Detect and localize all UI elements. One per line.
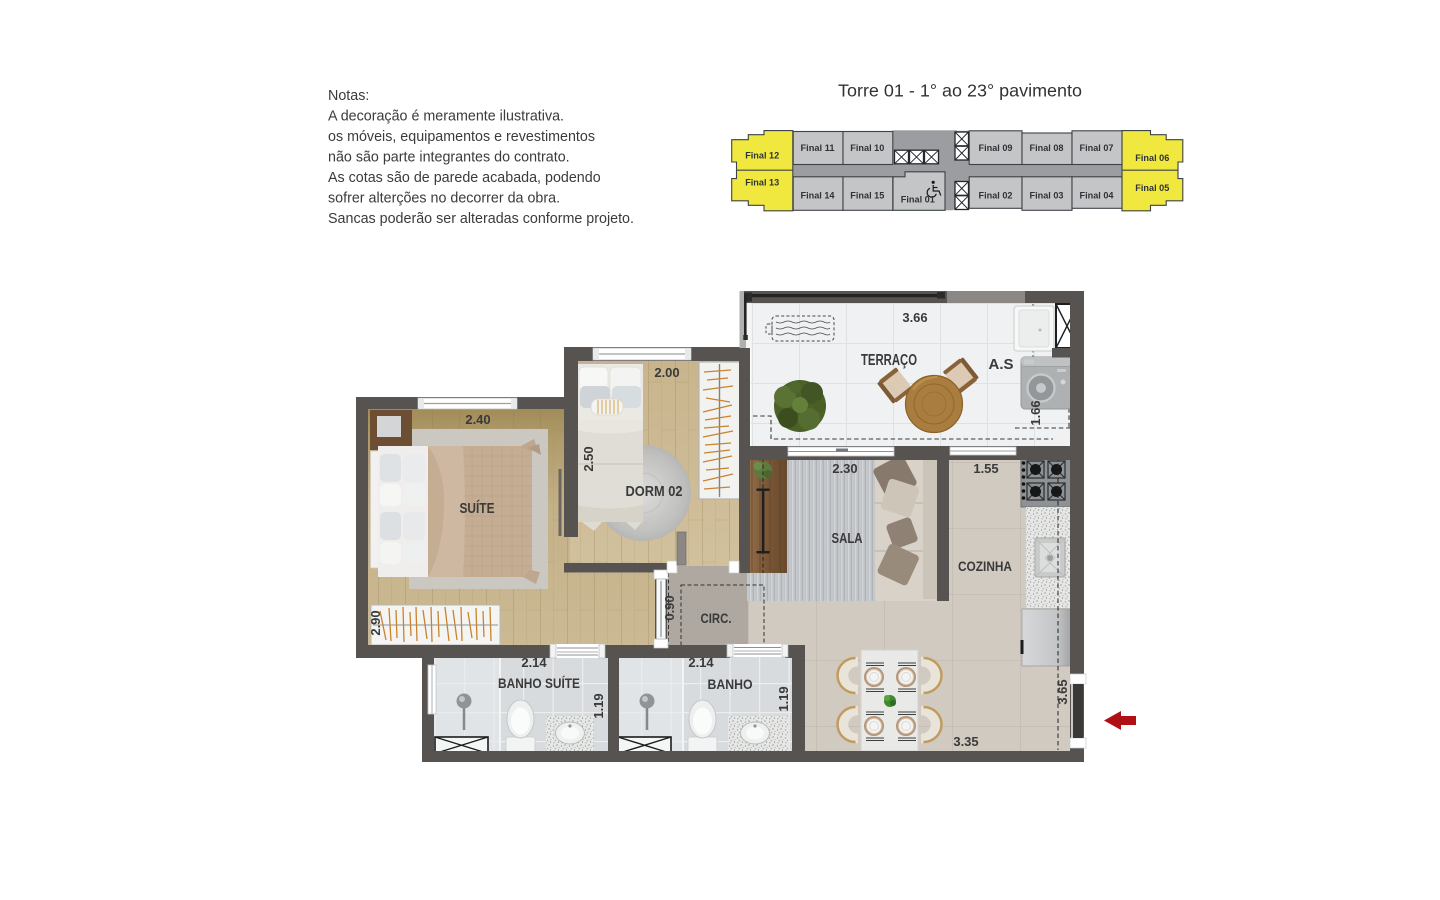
svg-text:Final 10: Final 10 bbox=[850, 143, 884, 153]
svg-text:não são parte integrantes do c: não são parte integrantes do contrato. bbox=[328, 150, 570, 166]
svg-text:1.19: 1.19 bbox=[776, 686, 791, 711]
svg-text:os móveis, equipamentos e reve: os móveis, equipamentos e revestimentos bbox=[328, 129, 595, 145]
svg-text:A.S: A.S bbox=[988, 356, 1013, 373]
svg-text:2.30: 2.30 bbox=[832, 461, 857, 476]
svg-text:3.35: 3.35 bbox=[953, 734, 978, 749]
svg-text:Final 09: Final 09 bbox=[979, 143, 1013, 153]
svg-text:DORM 02: DORM 02 bbox=[626, 483, 683, 500]
svg-text:Final 03: Final 03 bbox=[1030, 191, 1064, 201]
svg-text:Final 05: Final 05 bbox=[1135, 183, 1169, 193]
svg-text:Final 08: Final 08 bbox=[1030, 143, 1064, 153]
svg-text:SALA: SALA bbox=[832, 530, 863, 547]
svg-text:Final 07: Final 07 bbox=[1080, 143, 1114, 153]
svg-text:Final 02: Final 02 bbox=[979, 191, 1013, 201]
svg-text:SUÍTE: SUÍTE bbox=[460, 500, 495, 517]
svg-text:2.90: 2.90 bbox=[368, 610, 383, 635]
svg-text:Final 14: Final 14 bbox=[801, 191, 836, 201]
svg-text:1.66: 1.66 bbox=[1028, 400, 1043, 425]
svg-text:Torre 01 - 1° ao 23° pavimento: Torre 01 - 1° ao 23° pavimento bbox=[838, 81, 1082, 101]
svg-text:Final 15: Final 15 bbox=[850, 191, 884, 201]
svg-text:0.90: 0.90 bbox=[662, 595, 677, 620]
svg-text:1.19: 1.19 bbox=[591, 693, 606, 718]
svg-text:sofrer alterções no decorrer d: sofrer alterções no decorrer da obra. bbox=[328, 191, 560, 207]
svg-text:3.65: 3.65 bbox=[1055, 679, 1070, 704]
svg-text:Final 12: Final 12 bbox=[745, 150, 779, 160]
svg-text:COZINHA: COZINHA bbox=[958, 559, 1012, 574]
svg-text:Sancas poderão ser alteradas c: Sancas poderão ser alteradas conforme pr… bbox=[328, 211, 634, 227]
svg-text:1.55: 1.55 bbox=[973, 461, 998, 476]
svg-text:Final 06: Final 06 bbox=[1135, 153, 1169, 163]
svg-text:Final 13: Final 13 bbox=[745, 178, 779, 188]
svg-text:2.00: 2.00 bbox=[654, 365, 679, 380]
svg-text:As cotas são de parede acabada: As cotas são de parede acabada, podendo bbox=[328, 170, 601, 186]
svg-text:CIRC.: CIRC. bbox=[701, 610, 732, 626]
svg-text:Notas:: Notas: bbox=[328, 88, 369, 104]
svg-text:BANHO: BANHO bbox=[708, 677, 753, 692]
svg-text:Final 04: Final 04 bbox=[1080, 191, 1115, 201]
svg-text:2.40: 2.40 bbox=[465, 412, 490, 427]
svg-text:3.66: 3.66 bbox=[902, 310, 927, 325]
svg-text:2.50: 2.50 bbox=[581, 446, 596, 471]
svg-text:A decoração é meramente ilustr: A decoração é meramente ilustrativa. bbox=[328, 109, 564, 125]
svg-text:Final 11: Final 11 bbox=[801, 143, 835, 153]
svg-text:BANHO SUÍTE: BANHO SUÍTE bbox=[498, 676, 580, 691]
svg-text:2.14: 2.14 bbox=[688, 655, 714, 670]
svg-text:Final 01: Final 01 bbox=[901, 195, 935, 205]
svg-text:2.14: 2.14 bbox=[521, 655, 547, 670]
svg-text:TERRAÇO: TERRAÇO bbox=[861, 352, 917, 369]
